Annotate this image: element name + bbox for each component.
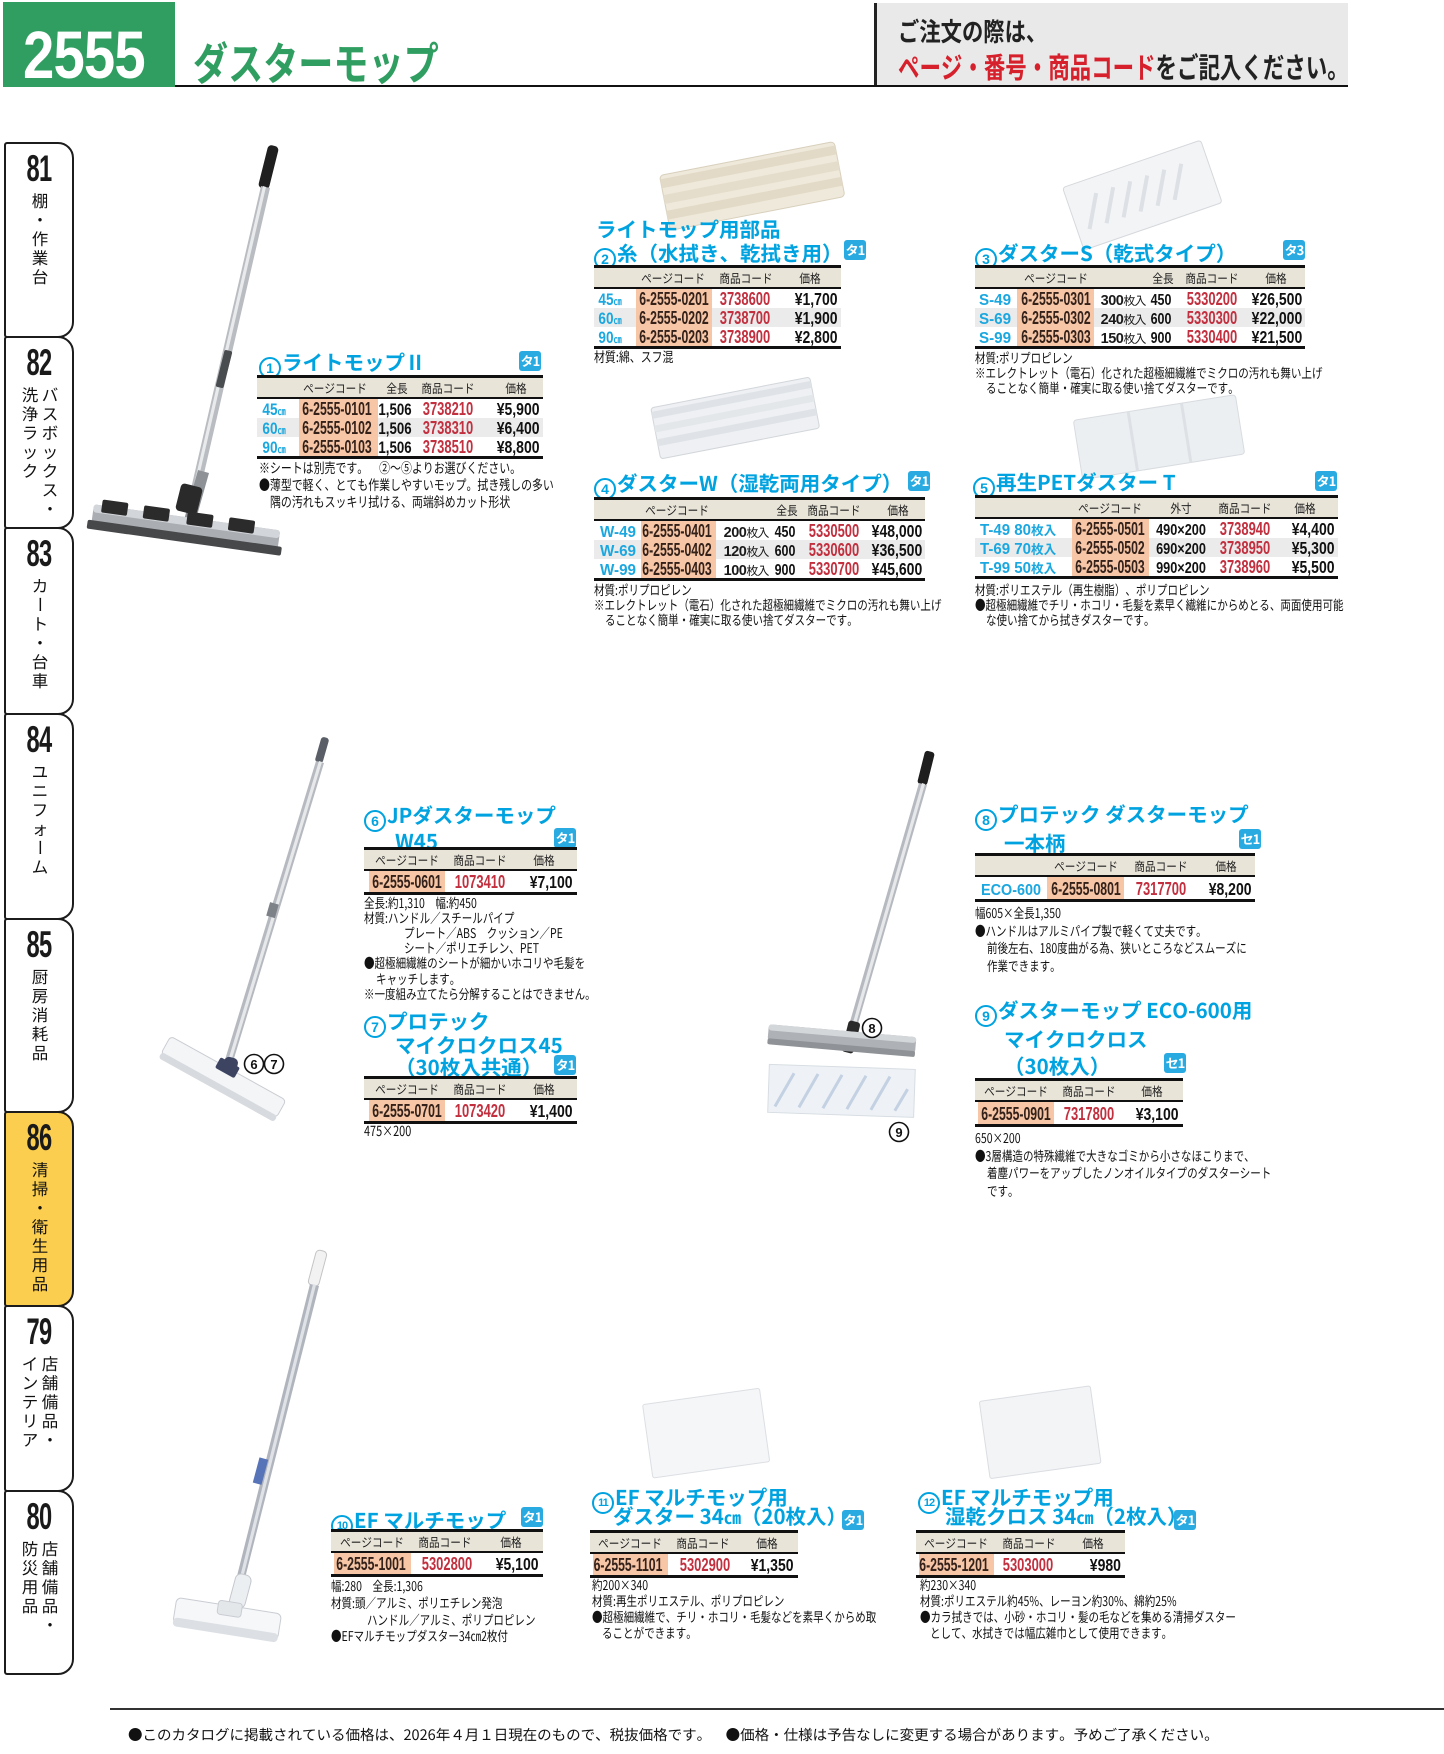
svg-text:7: 7 (270, 1057, 277, 1072)
svg-text:9: 9 (895, 1125, 902, 1140)
svg-text:8: 8 (868, 1021, 875, 1036)
svg-text:6: 6 (250, 1057, 257, 1072)
